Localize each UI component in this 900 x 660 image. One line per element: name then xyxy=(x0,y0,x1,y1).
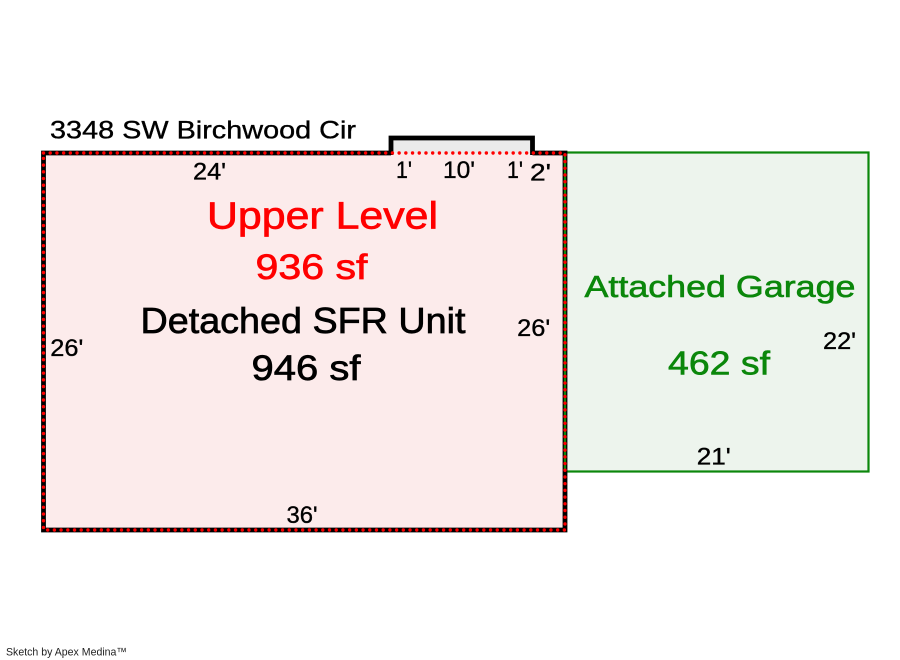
svg-text:Sketch by Apex Medina™: Sketch by Apex Medina™ xyxy=(6,647,127,659)
svg-text:26': 26' xyxy=(517,315,550,342)
svg-text:462 sf: 462 sf xyxy=(668,345,771,382)
svg-text:946 sf: 946 sf xyxy=(252,349,361,388)
svg-text:10': 10' xyxy=(443,157,475,184)
svg-text:936 sf: 936 sf xyxy=(256,248,368,287)
svg-text:Upper Level: Upper Level xyxy=(207,196,438,238)
svg-text:21': 21' xyxy=(697,444,731,471)
svg-text:22': 22' xyxy=(823,328,856,355)
svg-text:26': 26' xyxy=(50,335,83,362)
svg-text:Detached SFR Unit: Detached SFR Unit xyxy=(141,300,466,341)
svg-text:2': 2' xyxy=(530,160,551,187)
svg-text:3348 SW Birchwood Cir: 3348 SW Birchwood Cir xyxy=(50,117,356,145)
svg-text:1': 1' xyxy=(507,157,523,184)
svg-text:1': 1' xyxy=(396,157,412,184)
svg-text:Attached Garage: Attached Garage xyxy=(585,269,856,304)
svg-text:24': 24' xyxy=(193,159,226,186)
svg-text:36': 36' xyxy=(287,502,318,529)
